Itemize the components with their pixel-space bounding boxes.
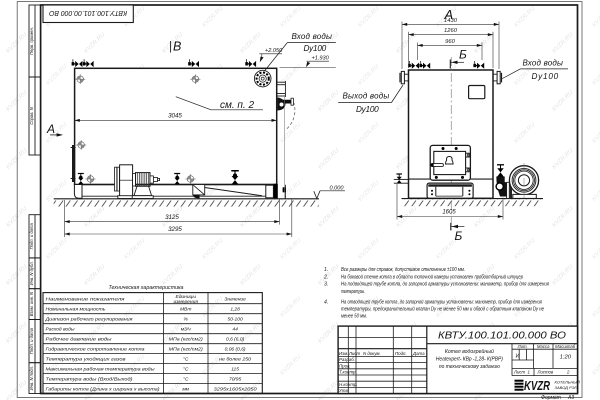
svg-text:Перв. примен.: Перв. примен. xyxy=(29,27,34,55)
svg-text:Лист: Лист xyxy=(348,351,361,356)
svg-text:Дата: Дата xyxy=(412,351,425,356)
svg-text:1605: 1605 xyxy=(442,210,456,216)
svg-text:Выход воды: Выход воды xyxy=(343,92,390,101)
svg-text:1430: 1430 xyxy=(444,18,458,24)
svg-text:+1.930: +1.930 xyxy=(312,56,330,62)
svg-text:измерения: измерения xyxy=(173,300,198,305)
svg-text:Габариты котла (Длина х ширина: Габариты котла (Длина х ширина х высота) xyxy=(46,387,160,393)
svg-text:Dy100: Dy100 xyxy=(356,105,379,114)
svg-text:На отводящей трубе котла ,до з: На отводящей трубе котла ,до запорной ар… xyxy=(341,299,542,306)
svg-text:Температура воды (Вход/Выход): Температура воды (Вход/Выход) xyxy=(46,377,133,383)
svg-text:Подп. и дата: Подп. и дата xyxy=(29,223,34,250)
svg-text:МПа (кгс/см2): МПа (кгс/см2) xyxy=(169,347,203,353)
svg-text:Подп.: Подп. xyxy=(395,351,407,356)
svg-text:Пров.: Пров. xyxy=(339,363,351,368)
svg-text:Масса: Масса xyxy=(537,344,550,349)
svg-text:1,28: 1,28 xyxy=(230,307,240,313)
svg-text:Диапазон рабочего регулировани: Диапазон рабочего регулирования xyxy=(44,317,132,323)
svg-text:Утв.: Утв. xyxy=(339,388,349,393)
svg-text:Б: Б xyxy=(455,229,463,243)
svg-text:1:20: 1:20 xyxy=(560,355,572,361)
svg-text:3125: 3125 xyxy=(165,214,179,221)
svg-text:Значение: Значение xyxy=(224,296,246,302)
svg-text:°С: °С xyxy=(183,377,189,383)
svg-text:Подп. и дата: Подп. и дата xyxy=(29,327,34,354)
svg-text:КВТУ.100.101.00.000 ВО: КВТУ.100.101.00.000 ВО xyxy=(438,331,566,342)
svg-text:Б: Б xyxy=(459,48,467,62)
svg-text:Справ. N: Справ. N xyxy=(29,106,34,124)
svg-text:КОТЕЛЬНЫЙ: КОТЕЛЬНЫЙ xyxy=(555,379,580,384)
svg-text:0.000: 0.000 xyxy=(330,185,345,191)
svg-text:Инв. N подл.: Инв. N подл. xyxy=(29,366,34,390)
svg-text:Листов: Листов xyxy=(537,370,554,375)
svg-text:50-100: 50-100 xyxy=(227,317,243,323)
svg-text:115: 115 xyxy=(231,367,239,373)
svg-text:А3: А3 xyxy=(567,395,574,400)
svg-text:%: % xyxy=(184,317,189,323)
svg-text:Температура уходящих газов: Температура уходящих газов xyxy=(46,357,127,363)
svg-text:Максимальная рабочая температу: Максимальная рабочая температура воды xyxy=(46,367,155,373)
svg-text:менее 50 мм.: менее 50 мм. xyxy=(341,314,367,320)
svg-text:Инв. N дубл.: Инв. N дубл. xyxy=(29,261,34,285)
svg-text:Лист: Лист xyxy=(513,370,525,375)
svg-text:Масштаб: Масштаб xyxy=(555,344,576,349)
svg-text:3045: 3045 xyxy=(168,112,182,119)
svg-text:°С: °С xyxy=(183,357,189,363)
svg-text:Н.контр.: Н.контр. xyxy=(339,382,358,387)
svg-text:Взам. инв. N: Взам. инв. N xyxy=(29,291,34,316)
svg-text:3295х1605х2050: 3295х1605х2050 xyxy=(214,387,257,393)
svg-text:по техническому заданию: по техническому заданию xyxy=(439,364,500,370)
svg-text:Разраб.: Разраб. xyxy=(339,357,355,362)
svg-text:Формат: Формат xyxy=(541,395,561,400)
svg-text:температуры, предохранительный: температуры, предохранительный клапан Dу… xyxy=(341,306,544,313)
svg-text:В: В xyxy=(173,40,181,54)
svg-text:Вход воды: Вход воды xyxy=(523,58,564,67)
svg-text:3.: 3. xyxy=(324,282,328,288)
svg-text:Техническая характеристика: Техническая характеристика xyxy=(109,285,184,291)
svg-text:Рабочее давление воды: Рабочее давление воды xyxy=(46,337,112,343)
svg-text:1.: 1. xyxy=(324,267,328,273)
svg-text:А: А xyxy=(46,122,55,136)
svg-text:3295: 3295 xyxy=(168,226,182,233)
svg-text:960: 960 xyxy=(445,39,455,45)
svg-text:Лит.: Лит. xyxy=(517,344,528,349)
svg-text:Вход воды: Вход воды xyxy=(292,32,333,41)
svg-text:0,6 (6,0): 0,6 (6,0) xyxy=(226,337,245,343)
svg-text:°С: °С xyxy=(183,367,189,373)
svg-text:не более 250: не более 250 xyxy=(219,357,251,363)
svg-text:ЗАВОД РЭП: ЗАВОД РЭП xyxy=(555,385,578,390)
svg-text:см. п. 2: см. п. 2 xyxy=(220,100,254,111)
svg-text:Номинальная мощность: Номинальная мощность xyxy=(46,307,106,313)
svg-text:мм: мм xyxy=(182,388,189,393)
svg-text:КВТУ.100.101.00.000 ВО: КВТУ.100.101.00.000 ВО xyxy=(49,9,127,18)
svg-text:1260: 1260 xyxy=(444,28,458,34)
svg-text:Неatexpert- КВр -1,28- К(РВР): Неatexpert- КВр -1,28- К(РВР) xyxy=(436,356,503,362)
svg-text:Т.контр.: Т.контр. xyxy=(339,370,357,375)
svg-text:Котел водогрейный: Котел водогрейный xyxy=(445,348,494,355)
svg-text:И: И xyxy=(516,354,520,360)
svg-text:Dy100: Dy100 xyxy=(304,44,327,53)
svg-text:N докум.: N докум. xyxy=(363,351,381,356)
svg-text:44: 44 xyxy=(232,327,238,333)
svg-text:70/95: 70/95 xyxy=(229,377,242,383)
svg-text:МВт: МВт xyxy=(180,307,191,313)
svg-text:Наименование показателя: Наименование показателя xyxy=(46,296,125,302)
svg-text:МПа (кгс/см2): МПа (кгс/см2) xyxy=(169,337,203,343)
svg-text:На боковой стенке котла в обла: На боковой стенке котла в области топочн… xyxy=(341,274,523,281)
svg-text:м3/ч: м3/ч xyxy=(181,327,191,333)
svg-text:Расход воды: Расход воды xyxy=(46,327,75,333)
svg-text:На подводящей трубе котла, д: На подводящей трубе котла, до запорной а… xyxy=(341,281,549,288)
svg-text:Изм.: Изм. xyxy=(339,351,348,356)
svg-text:4.: 4. xyxy=(324,300,328,306)
svg-text:Все размеры для справок, допус: Все размеры для справок, допустимое откл… xyxy=(341,267,465,273)
svg-text:температуры.: температуры. xyxy=(341,289,365,295)
svg-text:0,06 (0,6): 0,06 (0,6) xyxy=(225,347,246,353)
svg-text:Гидравлическое сопротивление к: Гидравлическое сопротивление котла xyxy=(46,347,145,353)
svg-text:Dy100: Dy100 xyxy=(532,72,559,81)
svg-text:2.: 2. xyxy=(323,275,328,281)
svg-text:KVZR: KVZR xyxy=(524,379,550,393)
